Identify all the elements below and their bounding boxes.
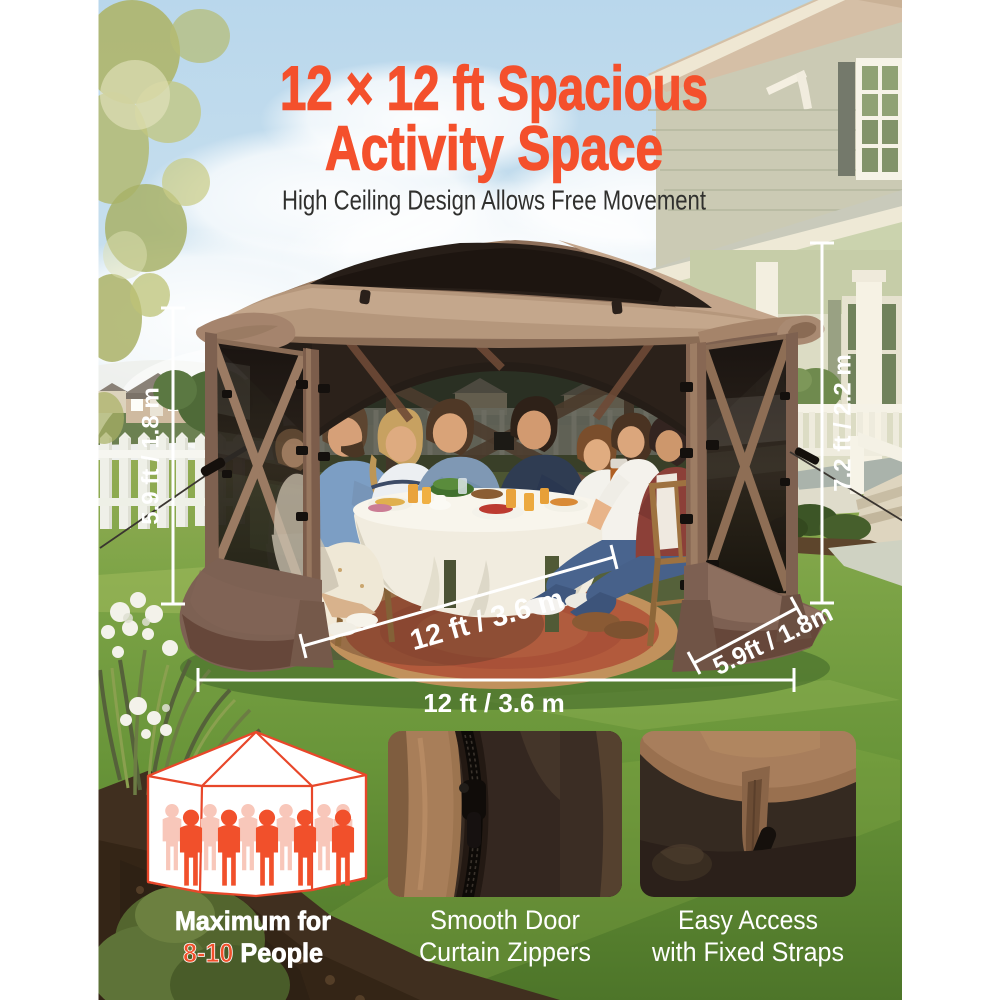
svg-text:5.9 ft / 1.8 m: 5.9 ft / 1.8 m	[138, 387, 165, 524]
svg-text:Smooth Door: Smooth Door	[430, 905, 580, 935]
svg-text:7.2 ft / 2.2 m: 7.2 ft / 2.2 m	[830, 354, 857, 491]
svg-text:Activity Space: Activity Space	[325, 115, 663, 184]
svg-text:High Ceiling Design Allows Fre: High Ceiling Design Allows Free Movement	[282, 185, 706, 216]
svg-text:Maximum for: Maximum for	[175, 906, 331, 936]
svg-text:Curtain Zippers: Curtain Zippers	[419, 937, 591, 967]
svg-text:12 × 12 ft Spacious: 12 × 12 ft Spacious	[280, 55, 708, 124]
svg-text:Easy Access: Easy Access	[678, 905, 818, 935]
svg-text:with Fixed Straps: with Fixed Straps	[651, 937, 844, 967]
svg-text:12 ft / 3.6 m: 12 ft / 3.6 m	[423, 688, 565, 718]
svg-text:8-10 People: 8-10 People	[183, 938, 323, 968]
